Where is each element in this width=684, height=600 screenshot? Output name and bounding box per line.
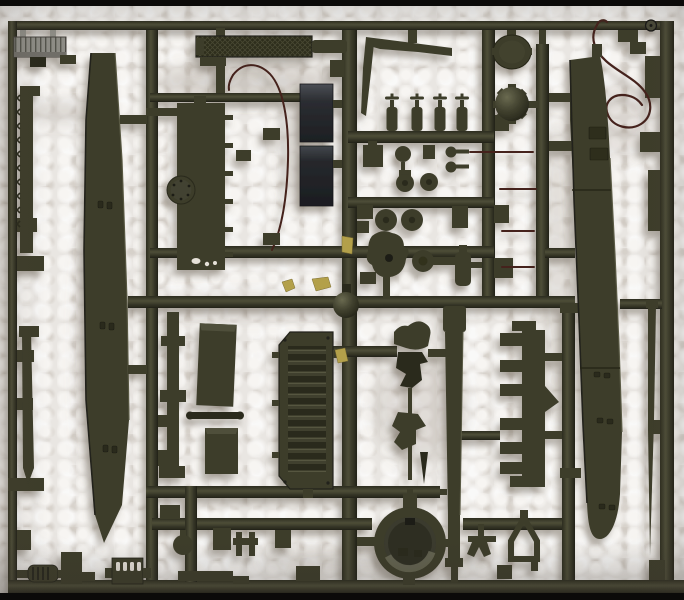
film-edge-bottom — [0, 593, 684, 600]
film-edge-top — [0, 0, 684, 6]
louvered-grille — [272, 332, 343, 498]
sprue-ball — [333, 292, 359, 318]
photo-model-kit-sprue — [0, 0, 684, 600]
push-rod — [186, 412, 244, 420]
stamp-mark — [646, 20, 657, 31]
gray-ribbed-plate — [14, 30, 76, 67]
corner-blocks — [649, 560, 665, 580]
bottle-row — [385, 94, 469, 132]
muffler — [17, 552, 95, 584]
stowage-slabs — [196, 323, 238, 474]
small-fittings — [363, 141, 482, 298]
hatch-disc — [492, 30, 532, 69]
v-bracket — [467, 524, 512, 579]
sprue-illustration — [0, 0, 684, 600]
